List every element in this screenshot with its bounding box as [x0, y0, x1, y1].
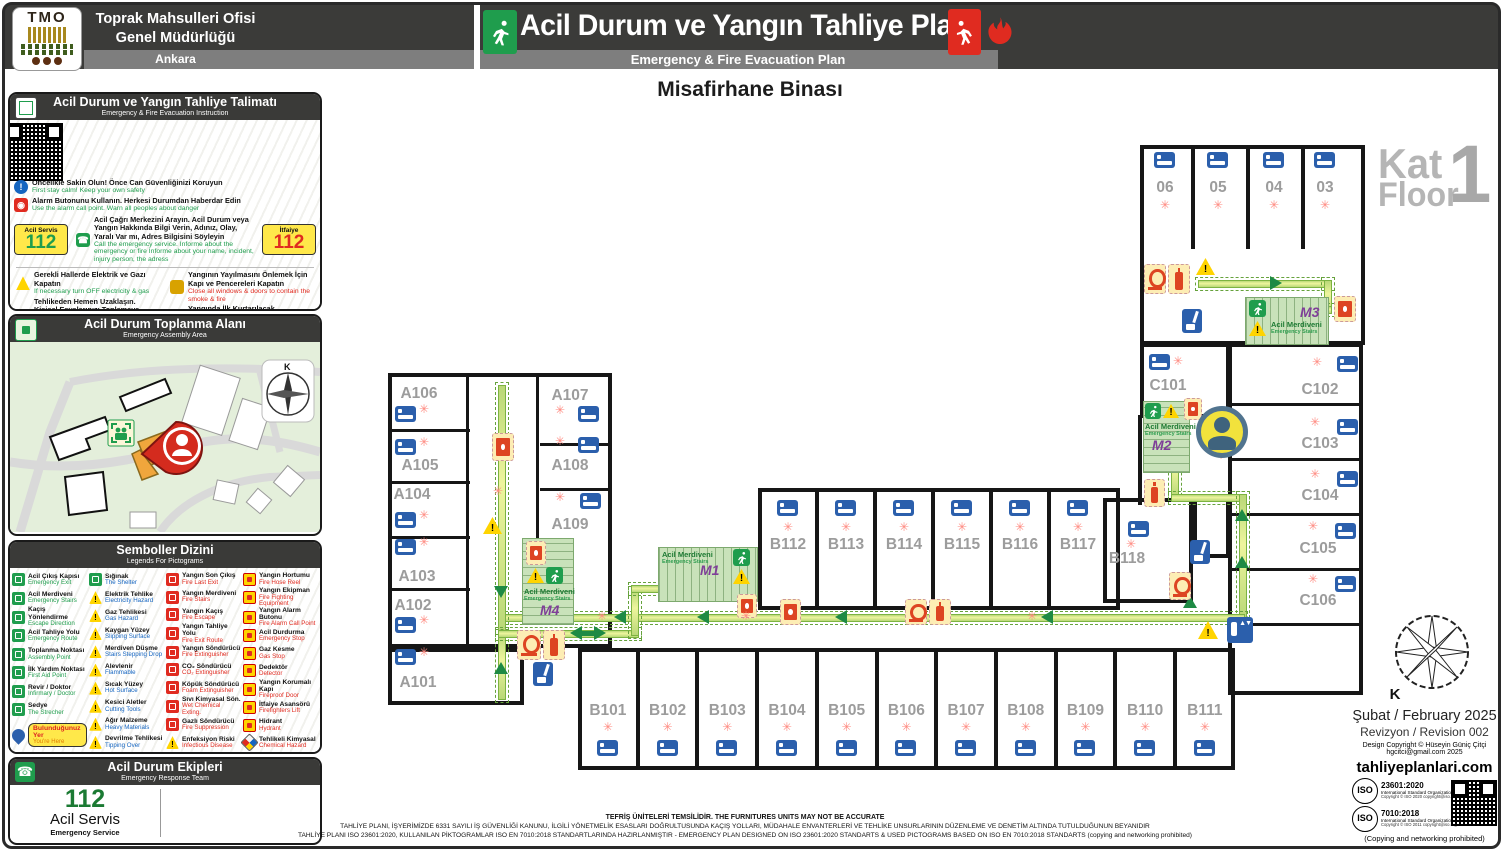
room-A105: A105 — [401, 457, 438, 475]
bed-icon — [1263, 152, 1284, 168]
detector-icon: ✳ — [597, 610, 607, 622]
detector-icon: ✳ — [1269, 199, 1279, 211]
room-C102: C102 — [1301, 381, 1338, 399]
detector-icon: ✳ — [1160, 199, 1170, 211]
fire-hose-icon — [1144, 264, 1166, 294]
room-A101: A101 — [399, 674, 436, 692]
route-arrow — [835, 610, 847, 624]
room-B118: B118 — [1109, 550, 1145, 568]
wall-segment — [1173, 652, 1177, 766]
room-A103: A103 — [398, 568, 435, 586]
room-05: 05 — [1209, 179, 1226, 197]
detector-icon: ✳ — [1080, 721, 1090, 733]
footer-disclaimer: TEFRİŞ ÜNİTELERİ TEMSİLİDİR. THE FURNITU… — [150, 814, 1340, 839]
bed-icon — [578, 406, 599, 422]
detector-icon: ✳ — [782, 721, 792, 733]
bed-icon — [395, 617, 416, 633]
bed-icon — [716, 740, 737, 756]
bed-icon — [1067, 500, 1088, 516]
fire-alarm-icon — [780, 599, 801, 625]
route-arrow — [1235, 509, 1249, 521]
room-A106: A106 — [400, 385, 437, 403]
emergency-exit-icon — [1145, 403, 1161, 419]
bed-icon — [1128, 521, 1149, 537]
floor-plan: Acil MerdiveniEmergency StairsM1Acil Mer… — [0, 0, 1503, 851]
bed-icon — [835, 500, 856, 516]
detector-icon: ✳ — [555, 491, 565, 503]
room-04: 04 — [1265, 179, 1282, 197]
detector-icon: ✳ — [419, 509, 429, 521]
footer-line3: TAHLİYE PLANI ISO 23601:2020, KULLANILAN… — [150, 832, 1340, 839]
wall-segment — [1054, 652, 1058, 766]
route-arrow — [494, 662, 508, 674]
evacuation-route — [1171, 494, 1247, 502]
room-A109: A109 — [551, 516, 588, 534]
stair-label-tr: Acil Merdiveni — [662, 551, 713, 559]
website: tahliyeplanlari.com — [1352, 759, 1497, 776]
wall-segment — [392, 588, 470, 591]
room-B116: B116 — [1002, 536, 1038, 554]
wall-segment — [695, 652, 699, 766]
emergency-exit-icon — [1249, 300, 1266, 317]
evacuation-route — [631, 589, 639, 636]
bed-icon — [578, 437, 599, 453]
wall-segment — [1232, 513, 1360, 516]
cleaning-room-icon — [1182, 309, 1202, 333]
detector-icon: ✳ — [419, 536, 429, 548]
bed-icon — [597, 740, 618, 756]
fire-hose-icon — [905, 599, 927, 625]
fire-hose-icon — [517, 630, 541, 660]
room-B110: B110 — [1127, 702, 1163, 720]
room-B104: B104 — [768, 702, 805, 720]
wall-segment — [1047, 492, 1051, 606]
wall-segment — [815, 492, 819, 606]
emergency-exit-icon — [546, 567, 563, 584]
bed-icon — [777, 500, 798, 516]
floor-badge-floor: Floor — [1378, 176, 1459, 215]
detector-icon: ✳ — [419, 646, 429, 658]
route-arrow — [1270, 276, 1282, 290]
detector-icon: ✳ — [1310, 468, 1320, 480]
stair-label-tr: Acil Merdiveni — [524, 588, 575, 596]
meta-block: Şubat / February 2025 Revizyon / Revisio… — [1352, 708, 1497, 843]
route-arrow — [1235, 556, 1249, 568]
room-C105: C105 — [1299, 540, 1336, 558]
bed-icon — [1337, 356, 1358, 372]
evacuation-route — [1198, 280, 1332, 288]
bed-icon — [1149, 354, 1170, 370]
wall-segment — [873, 492, 877, 606]
plan-date: Şubat / February 2025 — [1352, 708, 1497, 724]
detector-icon: ✳ — [1308, 573, 1318, 585]
wall-segment — [875, 652, 879, 766]
bed-icon — [955, 740, 976, 756]
bed-icon — [395, 539, 416, 555]
detector-icon: ✳ — [899, 521, 909, 533]
iso-roundel-icon: ISO — [1352, 778, 1378, 804]
you-are-here-icon — [1196, 406, 1248, 458]
wall-segment — [1138, 415, 1142, 505]
stair-label-tr: Acil Merdiveni — [1271, 321, 1322, 329]
detector-icon: ✳ — [1308, 520, 1318, 532]
detector-icon: ✳ — [842, 721, 852, 733]
bed-icon — [1134, 740, 1155, 756]
room-B109: B109 — [1067, 702, 1104, 720]
bed-icon — [1074, 740, 1095, 756]
bed-icon — [895, 740, 916, 756]
bed-icon — [395, 406, 416, 422]
bed-icon — [395, 512, 416, 528]
room-C106: C106 — [1299, 592, 1336, 610]
floor-badge-number: 1 — [1448, 128, 1491, 222]
room-C103: C103 — [1301, 435, 1338, 453]
fire-alarm-icon — [1334, 296, 1356, 322]
wall-segment — [392, 481, 470, 484]
wall-segment — [536, 377, 539, 538]
bed-icon — [1335, 576, 1356, 592]
bed-icon — [1335, 523, 1356, 539]
room-A108: A108 — [551, 457, 588, 475]
fire-alarm-icon — [526, 541, 546, 565]
cleaning-room-icon — [1190, 540, 1210, 564]
room-B102: B102 — [649, 702, 686, 720]
wall-segment — [931, 492, 935, 606]
room-B101: B101 — [589, 702, 626, 720]
route-arrow — [614, 610, 626, 624]
room-B112: B112 — [770, 536, 806, 554]
fire-hose-icon — [1169, 572, 1191, 600]
detector-icon: ✳ — [603, 721, 613, 733]
footer-line2: TAHLİYE PLANI, İŞYERİMİZDE 6331 SAYILI İ… — [150, 823, 1340, 830]
detector-icon: ✳ — [783, 521, 793, 533]
bed-icon — [395, 649, 416, 665]
wall-segment — [1191, 149, 1195, 249]
detector-icon: ✳ — [1073, 521, 1083, 533]
bed-icon — [1154, 152, 1175, 168]
fire-extinguisher-icon — [1144, 479, 1165, 507]
fire-extinguisher-icon — [543, 630, 565, 660]
detector-icon: ✳ — [901, 721, 911, 733]
room-B115: B115 — [944, 536, 980, 554]
detector-icon: ✳ — [957, 521, 967, 533]
detector-icon: ✳ — [841, 521, 851, 533]
wall-segment — [636, 652, 640, 766]
wall-segment — [466, 377, 469, 645]
bed-icon — [776, 740, 797, 756]
bed-icon — [1009, 500, 1030, 516]
route-arrow — [494, 586, 508, 598]
bed-icon — [395, 439, 416, 455]
wall-segment — [1232, 403, 1360, 406]
bed-icon — [836, 740, 857, 756]
room-A104: A104 — [393, 486, 430, 504]
wall-segment — [1232, 568, 1360, 571]
wall-segment — [1246, 149, 1250, 249]
stair-label-en: Emergency Stairs — [1271, 329, 1317, 335]
detector-icon: ✳ — [1027, 610, 1037, 622]
stair-code-M4: M4 — [540, 602, 559, 618]
route-arrow — [697, 610, 709, 624]
wall-segment — [755, 652, 759, 766]
emergency-exit-icon — [733, 549, 750, 566]
detector-icon: ✳ — [1021, 721, 1031, 733]
fire-extinguisher-icon — [929, 599, 951, 625]
bed-icon — [893, 500, 914, 516]
bed-icon — [1015, 740, 1036, 756]
room-B107: B107 — [948, 702, 985, 720]
room-C101: C101 — [1149, 377, 1186, 395]
bed-icon — [951, 500, 972, 516]
bed-icon — [1194, 740, 1215, 756]
detector-icon: ✳ — [1140, 721, 1150, 733]
room-B114: B114 — [886, 536, 922, 554]
detector-icon: ✳ — [419, 614, 429, 626]
qr-code-icon — [1451, 780, 1497, 826]
detector-icon: ✳ — [1310, 416, 1320, 428]
wall-segment — [989, 492, 993, 606]
route-arrow — [1041, 610, 1053, 624]
room-B105: B105 — [828, 702, 865, 720]
detector-icon: ✳ — [555, 404, 565, 416]
room-B111: B111 — [1187, 702, 1222, 720]
detector-icon: ✳ — [722, 721, 732, 733]
room-C104: C104 — [1301, 487, 1338, 505]
design-copyright: Design Copyright © Hüseyin Güniç Çitçi — [1352, 742, 1497, 749]
wall-segment — [1232, 458, 1360, 461]
detector-icon: ✳ — [1015, 521, 1025, 533]
detector-icon: ✳ — [1126, 538, 1136, 550]
room-06: 06 — [1156, 179, 1173, 197]
detector-icon: ✳ — [1200, 721, 1210, 733]
wall-segment — [392, 429, 470, 432]
detector-icon: ✳ — [419, 403, 429, 415]
bed-icon — [1314, 152, 1335, 168]
stair-code-M2: M2 — [1152, 437, 1171, 453]
room-03: 03 — [1316, 179, 1333, 197]
bed-icon — [1337, 471, 1358, 487]
detector-icon: ✳ — [1320, 199, 1330, 211]
room-B103: B103 — [709, 702, 746, 720]
detector-icon: ✳ — [1312, 356, 1322, 368]
fire-alarm-icon — [492, 433, 514, 461]
compass-label: K — [1385, 686, 1405, 703]
detector-icon: ✳ — [961, 721, 971, 733]
room-B113: B113 — [828, 536, 864, 554]
wall-segment — [994, 652, 998, 766]
bed-icon — [580, 493, 601, 509]
footer-line1: TEFRİŞ ÜNİTELERİ TEMSİLİDİR. THE FURNITU… — [150, 814, 1340, 821]
wall-segment — [540, 443, 610, 446]
evacuation-plan-sheet: TMO Toprak Mahsulleri OfisiGenel Müdürlü… — [0, 0, 1503, 851]
detector-icon: ✳ — [493, 485, 503, 497]
route-arrow — [570, 626, 606, 640]
room-B106: B106 — [888, 702, 925, 720]
detector-icon: ✳ — [1213, 199, 1223, 211]
prohibited-note: (Copying and networking prohibited) — [1352, 834, 1497, 843]
fire-extinguisher-icon — [1168, 264, 1190, 294]
compass-rose — [1392, 612, 1472, 692]
detector-icon: ✳ — [741, 610, 751, 622]
iso-roundel-icon: ISO — [1352, 806, 1378, 832]
room-B117: B117 — [1060, 536, 1096, 554]
elevator-icon — [1227, 617, 1253, 643]
stair-code-M3: M3 — [1300, 304, 1319, 320]
bed-icon — [657, 740, 678, 756]
room-B108: B108 — [1007, 702, 1044, 720]
bed-icon — [1207, 152, 1228, 168]
detector-icon: ✳ — [419, 436, 429, 448]
wall-segment — [815, 652, 819, 766]
wall-segment — [540, 488, 610, 491]
wall-segment — [1301, 149, 1305, 249]
detector-icon: ✳ — [1173, 355, 1183, 367]
plan-revision: Revizyon / Revision 002 — [1352, 725, 1497, 739]
wall-segment — [1113, 652, 1117, 766]
cleaning-room-icon — [533, 662, 553, 686]
detector-icon: ✳ — [555, 435, 565, 447]
stair-code-M1: M1 — [700, 562, 719, 578]
bed-icon — [1337, 419, 1358, 435]
design-email: hgcitci@gmail.com 2025 — [1352, 749, 1497, 756]
warning-icon — [1198, 621, 1218, 639]
wall-segment — [934, 652, 938, 766]
detector-icon: ✳ — [663, 721, 673, 733]
stair-label-tr: Acil Merdiveni — [1145, 423, 1196, 431]
